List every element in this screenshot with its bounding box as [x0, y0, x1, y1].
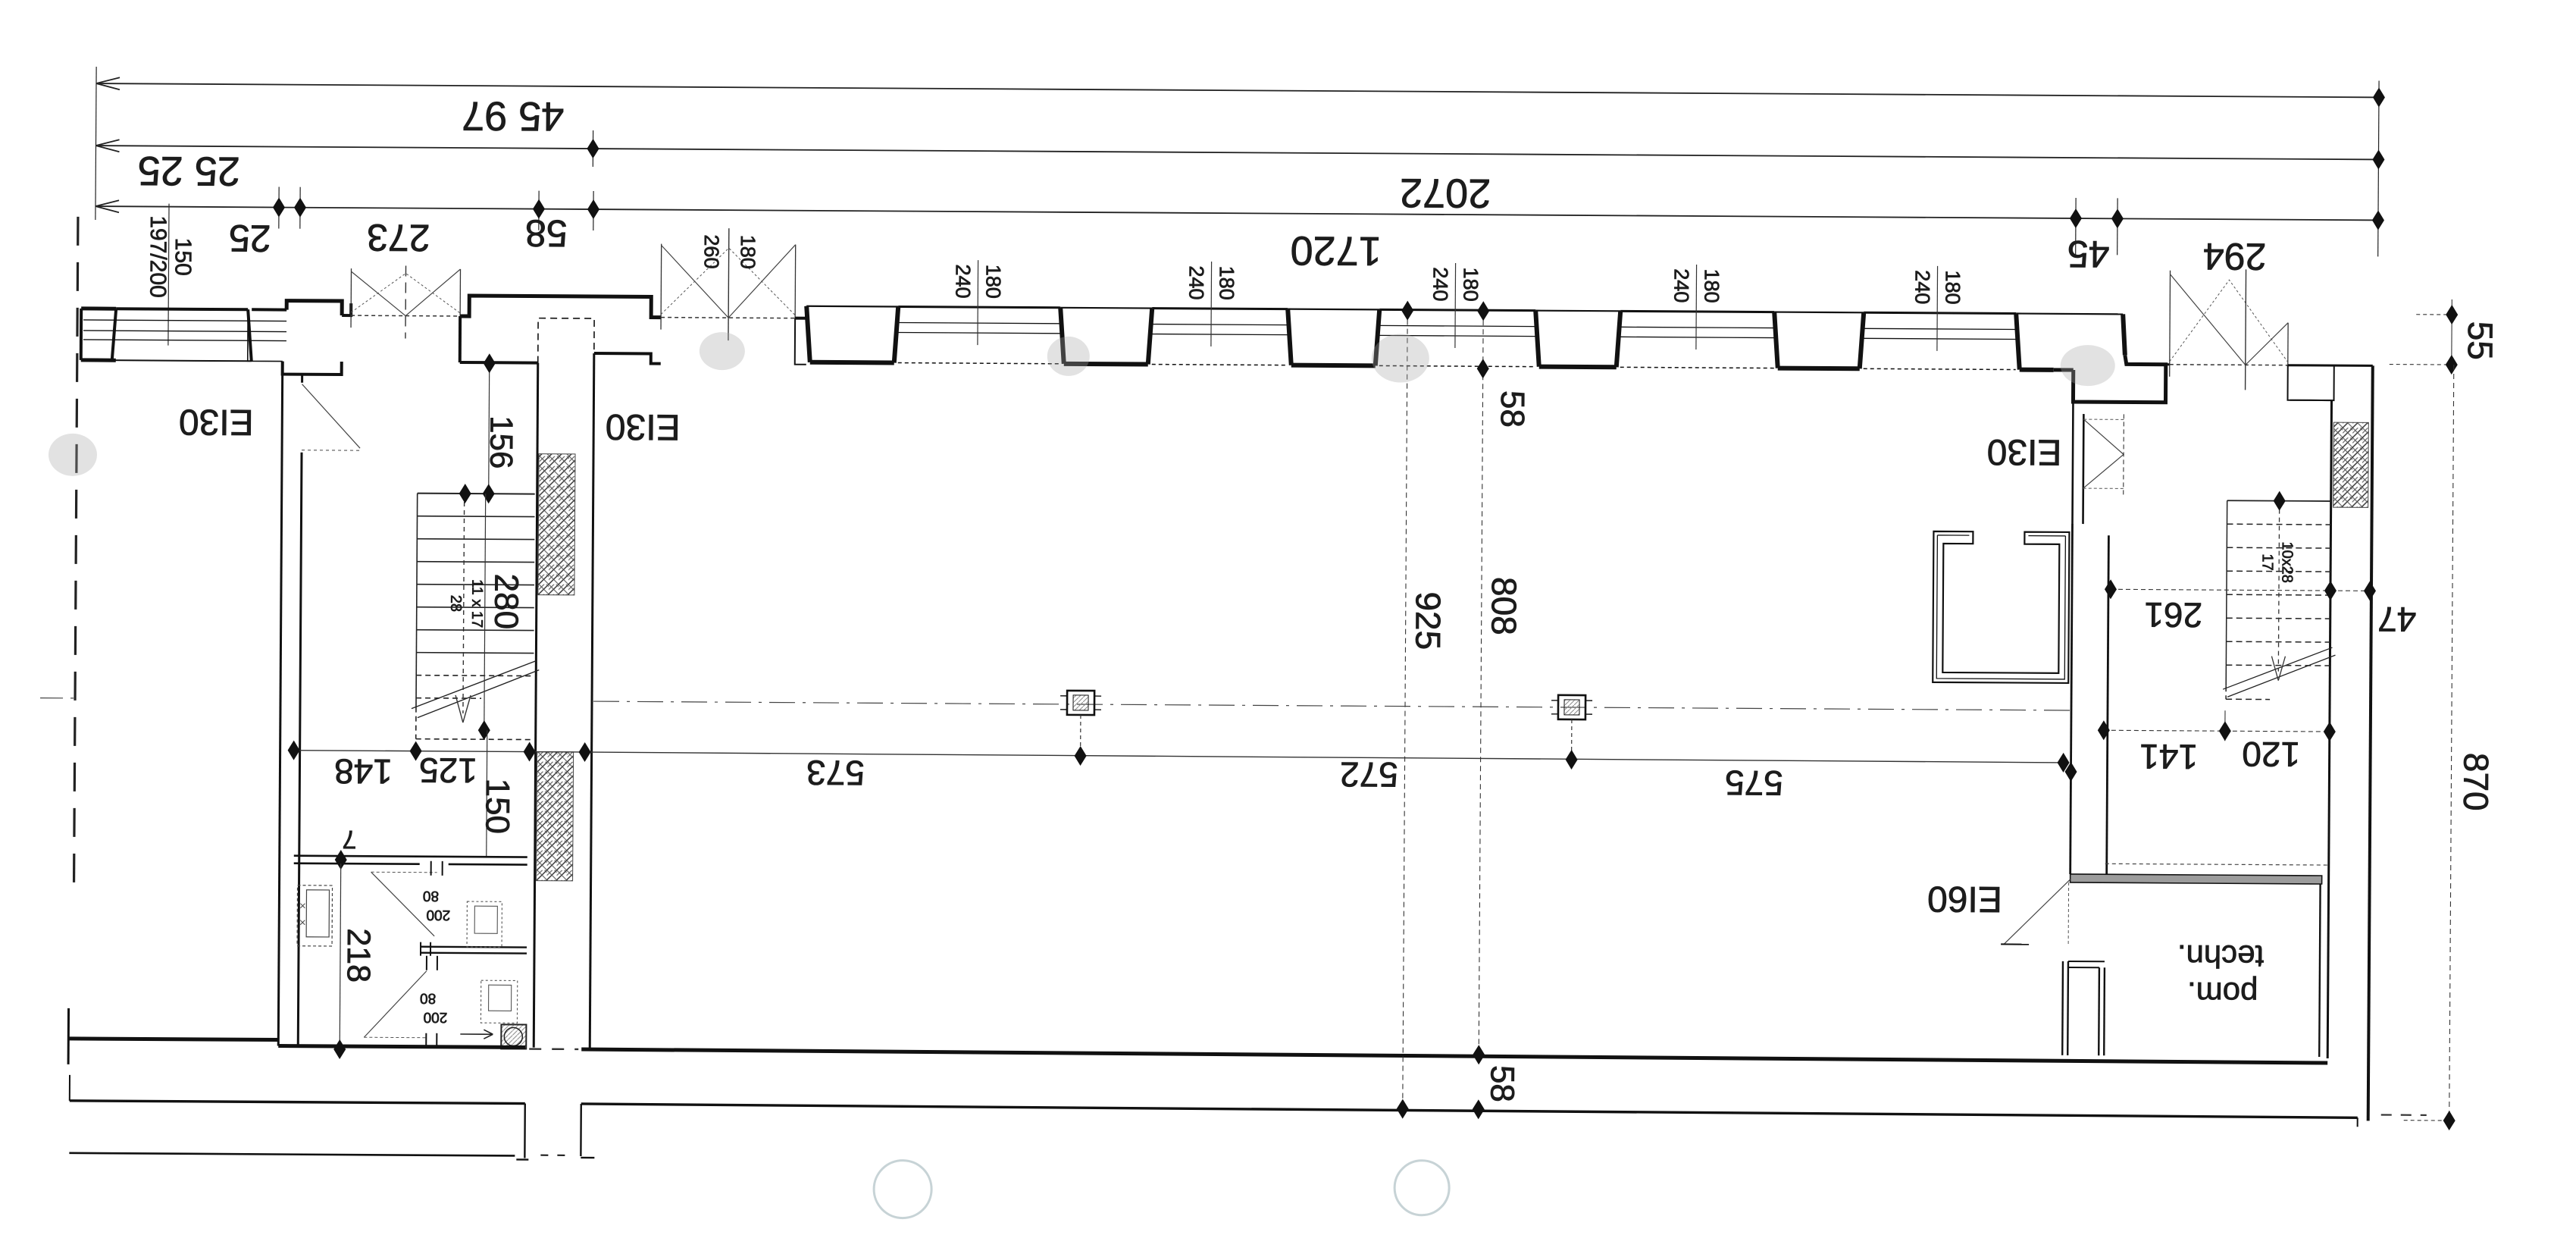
svg-text:45: 45	[2067, 233, 2110, 275]
svg-text:45 97: 45 97	[462, 93, 565, 139]
svg-text:240: 240	[1429, 267, 1451, 301]
svg-text:25: 25	[229, 217, 271, 259]
svg-text:EI30: EI30	[1987, 431, 2062, 472]
svg-text:573: 573	[806, 753, 865, 792]
svg-text:17: 17	[2259, 553, 2276, 570]
svg-text:120: 120	[2242, 735, 2300, 774]
svg-text:80: 80	[420, 990, 436, 1006]
svg-text:240: 240	[1670, 268, 1692, 302]
svg-text:294: 294	[2203, 235, 2267, 278]
svg-text:180: 180	[981, 265, 1004, 299]
svg-text:47: 47	[2377, 600, 2416, 639]
svg-text:180: 180	[1941, 270, 1964, 304]
svg-text:197/200: 197/200	[145, 215, 171, 298]
svg-text:141: 141	[2139, 737, 2198, 776]
svg-text:260: 260	[700, 234, 723, 268]
svg-text:925: 925	[1408, 591, 1448, 650]
svg-text:EI30: EI30	[606, 406, 681, 447]
svg-text:240: 240	[1185, 265, 1207, 299]
svg-text:techn.: techn.	[2177, 939, 2265, 975]
svg-text:pom.: pom.	[2187, 976, 2258, 1012]
svg-text:870: 870	[2456, 753, 2496, 811]
svg-text:58: 58	[1483, 1065, 1520, 1102]
svg-text:218: 218	[340, 928, 377, 983]
svg-text:1720: 1720	[1290, 227, 1382, 274]
svg-text:150: 150	[478, 778, 515, 834]
svg-text:25 25: 25 25	[138, 148, 241, 194]
svg-text:180: 180	[1459, 268, 1482, 302]
svg-text:180: 180	[1215, 266, 1238, 300]
svg-text:55: 55	[2461, 321, 2500, 360]
svg-text:7: 7	[342, 825, 356, 854]
svg-text:200: 200	[424, 1009, 448, 1025]
svg-text:2072: 2072	[1400, 170, 1491, 216]
svg-text:148: 148	[334, 751, 393, 791]
svg-text:180: 180	[1700, 268, 1723, 302]
svg-text:180: 180	[737, 235, 759, 269]
svg-text:200: 200	[426, 907, 450, 923]
svg-text:240: 240	[951, 264, 974, 298]
svg-text:280: 280	[487, 573, 524, 629]
svg-text:58: 58	[525, 212, 568, 255]
svg-text:80: 80	[423, 888, 439, 904]
svg-text:156: 156	[484, 415, 519, 469]
svg-text:240: 240	[1911, 270, 1933, 304]
svg-text:261: 261	[2144, 595, 2202, 635]
svg-text:EI60: EI60	[1927, 879, 2002, 920]
svg-text:11 x 17: 11 x 17	[468, 579, 485, 628]
svg-text:10x28: 10x28	[2278, 541, 2295, 583]
svg-text:EI30: EI30	[179, 401, 254, 442]
svg-text:273: 273	[367, 216, 430, 259]
svg-text:808: 808	[1484, 577, 1523, 635]
svg-text:572: 572	[1340, 755, 1398, 795]
svg-text:150: 150	[171, 238, 196, 276]
svg-text:575: 575	[1725, 763, 1783, 803]
svg-text:58: 58	[1494, 390, 1531, 428]
svg-text:125: 125	[419, 751, 477, 790]
svg-text:28: 28	[447, 595, 464, 612]
